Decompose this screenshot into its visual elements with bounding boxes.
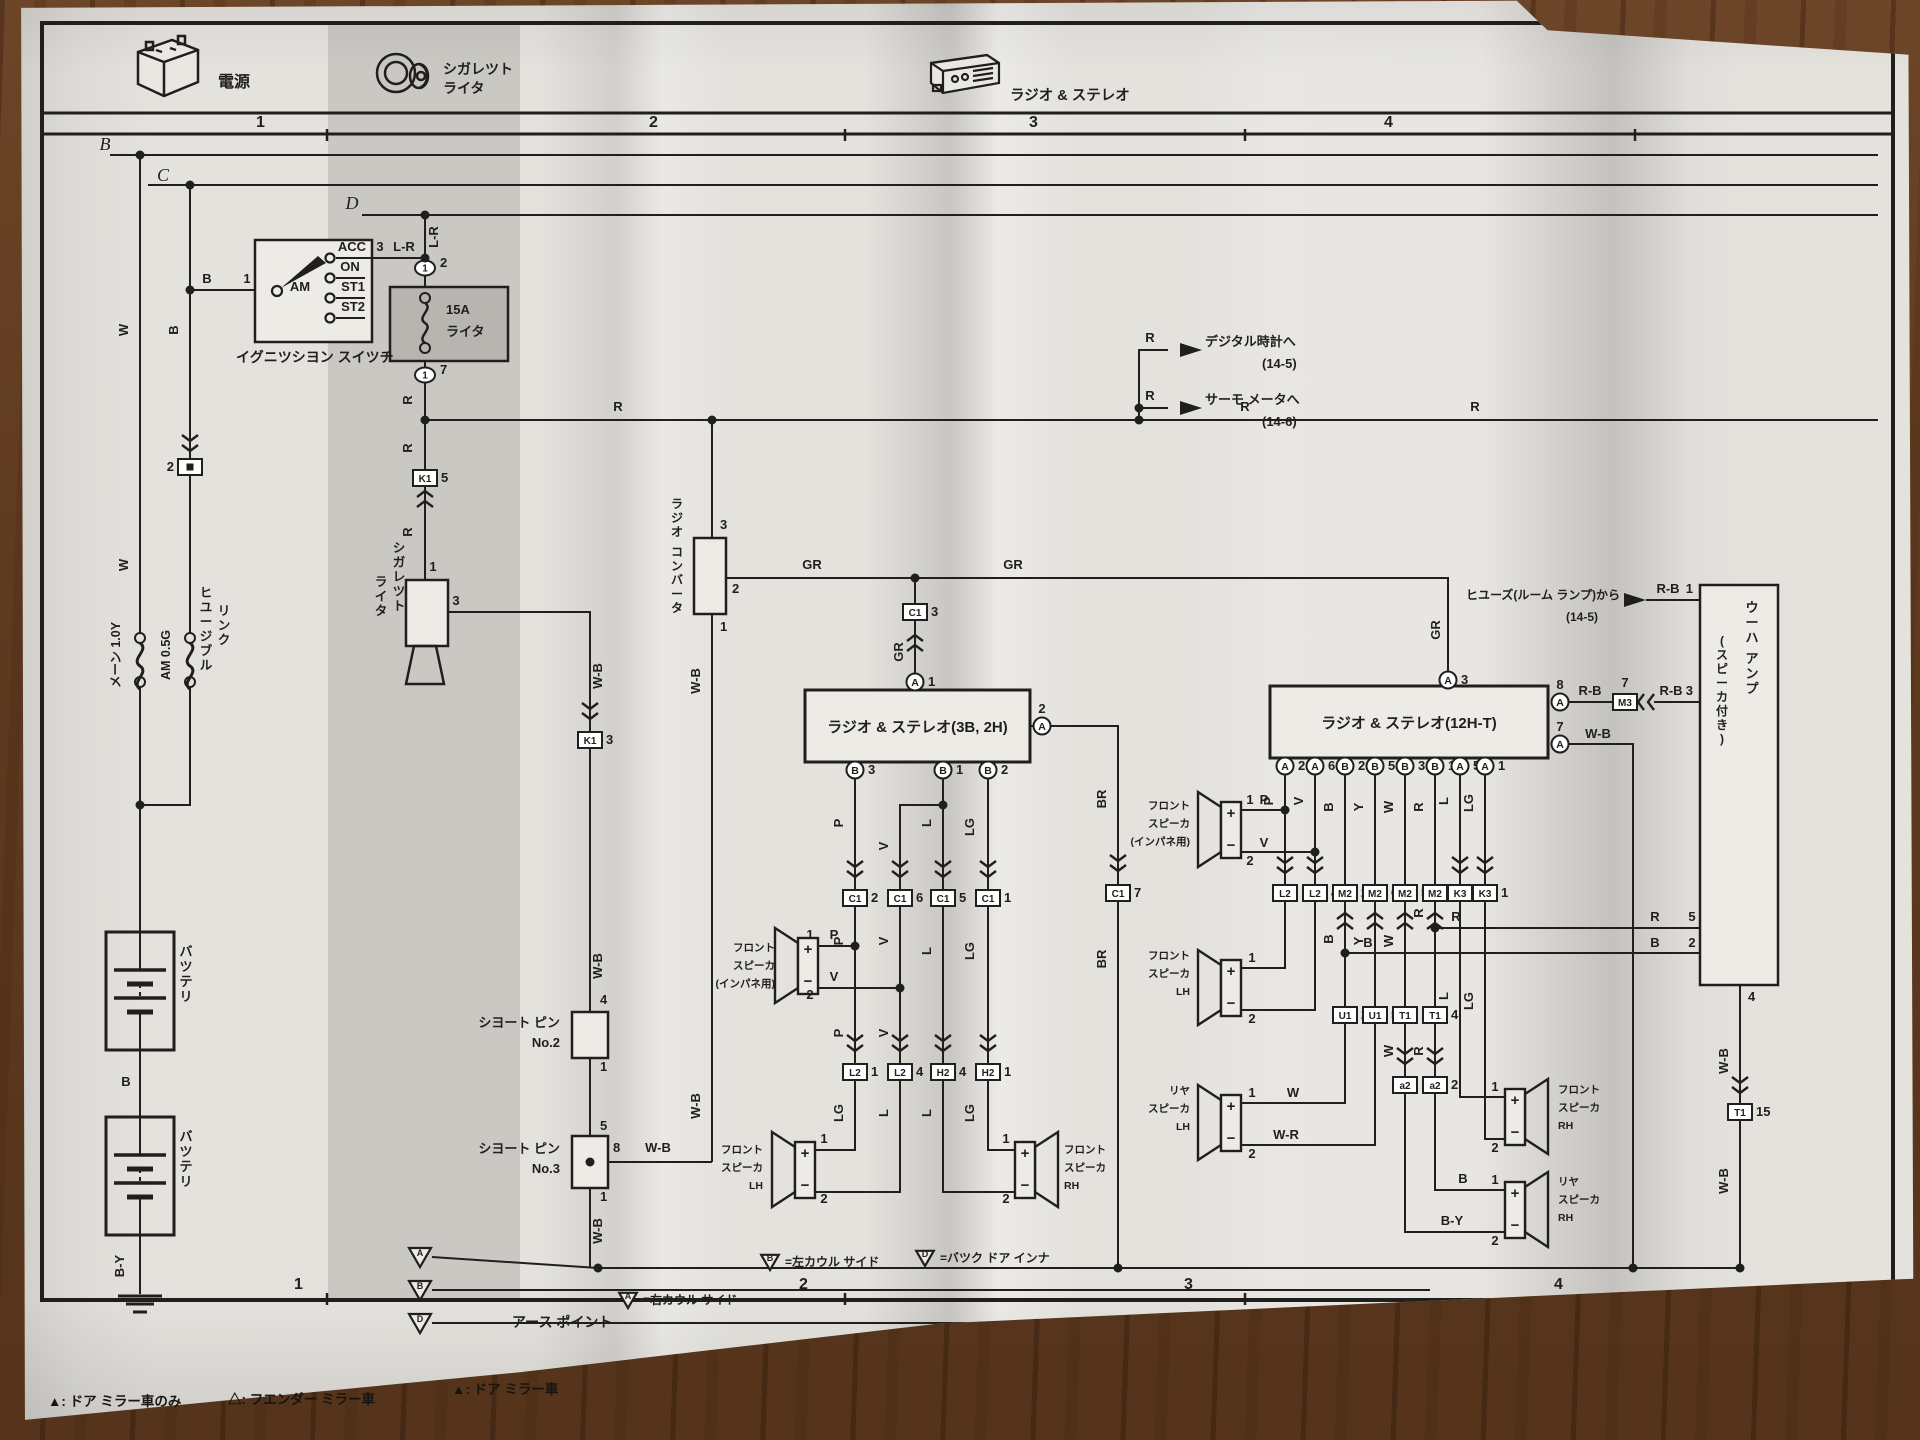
wire-label: 3 [1686, 683, 1693, 698]
connector-pin-number: 4 [959, 1064, 967, 1079]
ground-triangle-letter: D [417, 1314, 424, 1324]
connector-pin-number: 3 [606, 732, 613, 747]
wire-label: R [1411, 1046, 1426, 1056]
wire-label: =左カウル サイド [785, 1254, 879, 1269]
wire-label: 2 [1002, 1191, 1009, 1206]
junction-dot [1311, 848, 1320, 857]
vertical-label-char: テ [179, 974, 192, 989]
wire-label: イグニツシヨン スイツチ [236, 349, 394, 365]
wire-label: スピーカ [1558, 1194, 1600, 1206]
ground-triangle-letter: B [767, 1253, 774, 1263]
junction-dot [136, 801, 145, 810]
wire-label: (インパネ用) [1131, 836, 1191, 848]
column-number-bottom-1: 1 [294, 1276, 303, 1294]
wire-label: W [116, 558, 131, 571]
speaker-plus: + [801, 1145, 810, 1162]
ignition-contact [326, 294, 335, 303]
wire-label: LG [962, 942, 977, 960]
wire-label: B [1650, 935, 1659, 950]
wire-label: ST1 [341, 279, 365, 294]
speaker-minus: − [801, 1177, 810, 1194]
junction-dot [1135, 416, 1144, 425]
wire-label: W [1381, 934, 1396, 947]
speaker-plus: + [804, 941, 813, 958]
wire-label: LH [1176, 1121, 1190, 1133]
vertical-label-char: ジ [671, 511, 683, 525]
wire-label: B [1363, 935, 1372, 950]
vertical-label-char: タ [671, 601, 683, 615]
wire-label: GR [1003, 557, 1023, 572]
wire-label: RH [1064, 1180, 1079, 1192]
wire-label: フロント [1064, 1144, 1106, 1156]
vertical-label-char: ン [1745, 666, 1758, 681]
wire-label: L [919, 1109, 934, 1117]
wire-label: B [166, 325, 181, 334]
vertical-label-char: ツ [393, 585, 406, 599]
wire-label: スピーカ [733, 960, 775, 972]
wire-label: R [1451, 909, 1461, 924]
wire-label: アース ポイント [512, 1314, 612, 1330]
wire-label: 2 [1491, 1140, 1498, 1155]
header-label-radio: ラジオ & ステレオ [1010, 84, 1130, 105]
front-speaker-rh-12ht [1505, 1079, 1548, 1154]
junction-dot [586, 1158, 595, 1167]
connector-code: C1 [982, 894, 995, 905]
wire-label: 1 [1248, 950, 1255, 965]
connector-code: C1 [894, 894, 907, 905]
radio-3b2h-box-label: ラジオ & ステレオ(3B, 2H) [827, 719, 1008, 736]
wire-label: B [121, 1074, 130, 1089]
header-label-power: 電源 [218, 68, 250, 92]
pin-number: 1 [956, 762, 963, 777]
speaker-plus: + [1227, 805, 1236, 822]
vertical-label-char: リ [179, 1174, 192, 1189]
wire-label: V [876, 841, 891, 850]
vertical-label-char: テ [179, 1159, 192, 1174]
wire [1405, 1093, 1505, 1232]
wiring-diagram: ラジオ & ステレオ(3B, 2H)ラジオ & ステレオ(12H-T)+−+−+… [0, 0, 1920, 1440]
connector-pin-number: 6 [916, 890, 923, 905]
connector-code: M3 [1618, 698, 1632, 709]
wire-label: B [1458, 1171, 1467, 1186]
vertical-label-char: ツ [179, 959, 192, 974]
wire-label: R [613, 399, 623, 414]
vertical-label-char: ン [671, 559, 683, 573]
wire [1242, 1023, 1375, 1145]
wire-label: W-B [1716, 1048, 1731, 1074]
speaker-minus: − [1021, 1177, 1030, 1194]
speaker-minus: − [1511, 1217, 1520, 1234]
wire-label: L [919, 947, 934, 955]
pin-number: 2 [1038, 701, 1045, 716]
wire-label: LG [831, 1104, 846, 1122]
pin-circle-letter: A [1456, 761, 1464, 773]
vertical-label-char: ユ [200, 601, 213, 615]
wire-label: 3 [376, 239, 383, 254]
pin-number: 2 [1358, 758, 1365, 773]
pin-number: 2 [1001, 762, 1008, 777]
wire-label: LH [749, 1180, 763, 1192]
wire-label: 1 [1491, 1079, 1498, 1094]
pin-circle-letter: B [939, 765, 947, 777]
wire-label: P [830, 927, 839, 942]
wire-label: V [1260, 835, 1269, 850]
wire-label: (14-5) [1566, 610, 1598, 624]
wire [140, 687, 190, 805]
wire-label: GR [802, 557, 822, 572]
wire-label: スピーカ [1558, 1102, 1600, 1114]
wire-label: ON [340, 259, 360, 274]
vertical-label-char: カ [1716, 690, 1728, 704]
junction-dot [896, 984, 905, 993]
wire-label: R-B [1578, 683, 1601, 698]
wire-label: R [1650, 909, 1660, 924]
wire-label: スピーカ [721, 1162, 763, 1174]
wire-label: R [400, 395, 415, 405]
wire-label: R-B [1656, 581, 1679, 596]
vertical-label-char: ハ [1745, 630, 1758, 645]
wire-label: フロント [1148, 800, 1190, 812]
wire-label: L-R [426, 226, 441, 248]
wire-label: 8 [613, 1140, 620, 1155]
wire-label: AM [290, 279, 310, 294]
wire-label: L [876, 1109, 891, 1117]
wire-label: サーモ メータへ [1205, 392, 1300, 407]
ground-triangle-letter: B [417, 1281, 424, 1291]
vertical-label-char: ア [1745, 651, 1758, 666]
wire-label: No.3 [532, 1161, 560, 1176]
vertical-label-char: ピ [1716, 662, 1728, 676]
wire-label: No.2 [532, 1035, 560, 1050]
wire-label: R-B [1659, 683, 1682, 698]
wire-label: 5 [600, 1118, 607, 1133]
rear-speaker-rh [1505, 1172, 1548, 1247]
speaker-plus: + [1227, 1098, 1236, 1115]
wire-label: 2 [806, 987, 813, 1002]
speaker-minus: − [1227, 1130, 1236, 1147]
oval-connector-code: 1 [422, 371, 428, 382]
wire-label: 7 [440, 362, 447, 377]
wire-label: C [157, 165, 170, 185]
pin-number: 3 [1461, 672, 1468, 687]
wire-label: W-B [688, 668, 703, 694]
connector-pin-number: 1 [1501, 885, 1508, 900]
vertical-label-char: バ [179, 944, 192, 959]
wire-label: ヒユーズ(ルーム ランプ)から [1466, 587, 1620, 602]
wire-label: GR [891, 642, 906, 662]
wire-label: RH [1558, 1120, 1573, 1132]
pin-number: 3 [868, 762, 875, 777]
fusible-link-icon [187, 643, 193, 689]
wire-label: 1 [1491, 1172, 1498, 1187]
pin-circle-letter: A [1556, 739, 1564, 751]
wire-label: 8 [1556, 677, 1563, 692]
goes-to-arrow-icon [1180, 343, 1202, 357]
connector-code: K1 [584, 736, 597, 747]
junction-dot [1135, 404, 1144, 413]
wire [432, 1257, 1740, 1268]
pin-number: 2 [1298, 758, 1305, 773]
connector-pin-number: 2 [167, 459, 174, 474]
wire-label: 1 [820, 1131, 827, 1146]
vertical-label-char: バ [179, 1129, 192, 1144]
wire-label: 1 [429, 559, 436, 574]
wire-label: (インパネ用) [716, 978, 776, 990]
wire-label: AM 0.5G [159, 630, 173, 680]
wire-label: L-R [393, 239, 415, 254]
pin-number: 1 [928, 674, 935, 689]
wire-label: 2 [732, 581, 739, 596]
ignition-contact [326, 274, 335, 283]
wire-label: ST2 [341, 299, 365, 314]
wire-label: 1 [243, 271, 250, 286]
pin-circle-letter: A [1311, 761, 1319, 773]
wire-label: (14-5) [1262, 356, 1297, 371]
wire-label: P [1260, 792, 1269, 807]
ignition-am-contact [272, 286, 282, 296]
vertical-label-char: ジ [200, 630, 213, 644]
column-number-bottom-4: 4 [1554, 1276, 1563, 1294]
connector-code: C1 [937, 894, 950, 905]
vertical-label-char: シ [393, 541, 406, 555]
wire-label: V [1291, 796, 1306, 805]
wire-label: リヤ [1558, 1176, 1579, 1188]
vertical-label-char: ブ [200, 643, 213, 658]
speaker-minus: − [1227, 837, 1236, 854]
fusible-link-icon [185, 633, 195, 643]
pin-circle-letter: A [1038, 721, 1046, 733]
wire-label: B [1321, 934, 1336, 943]
vertical-label-char: ク [218, 633, 231, 647]
wire-label: BR [1094, 949, 1109, 968]
wire-label: 2 [1491, 1233, 1498, 1248]
vertical-label-char: ヒ [200, 586, 213, 600]
connector-pin-number: 1 [871, 1064, 878, 1079]
wire-label: ACC [338, 239, 367, 254]
wire-label: (14-6) [1262, 414, 1297, 429]
pin-number: 1 [1498, 758, 1505, 773]
connector-pin-number: 4 [1451, 1007, 1459, 1022]
photo-of-wiring-diagram: { "title": "電源 / シガレツト ライタ / ラジオ & ステレオ … [0, 0, 1920, 1440]
wire-label: スピーカ [1148, 968, 1190, 980]
wire-label: 1 [720, 619, 727, 634]
wire-label: B [202, 271, 211, 286]
junction-dot [186, 181, 195, 190]
wire-label: W-B [590, 663, 605, 689]
junction-dot [1281, 806, 1290, 815]
ground-triangle-letter: A [625, 1291, 632, 1301]
connector-code: U1 [1339, 1011, 1352, 1022]
wire-label: 1 [1248, 1085, 1255, 1100]
connector-pin-number: 2 [871, 890, 878, 905]
column-number-top-4: 4 [1384, 114, 1393, 132]
wire-label: 3 [720, 517, 727, 532]
header-label-lighter: シガレツト ライタ [443, 60, 513, 98]
vertical-label-char: ツ [179, 1144, 192, 1159]
connector-code: a2 [1399, 1081, 1411, 1092]
goes-to-arrow-icon [1180, 401, 1202, 415]
vertical-label-char: タ [375, 603, 388, 618]
wire-label: 4 [600, 992, 608, 1007]
wire-label: 7 [1556, 719, 1563, 734]
wire-label: =バツク ドア インナ [940, 1251, 1050, 1265]
wire [815, 1080, 900, 1192]
wire-label: W-B [645, 1140, 671, 1155]
junction-dot [851, 942, 860, 951]
connector-pin-number: 2 [1451, 1077, 1458, 1092]
vertical-label-char: ー [1745, 615, 1758, 630]
pin-number: 6 [1328, 758, 1335, 773]
connector-code: M2 [1398, 889, 1412, 900]
front-speaker-lh-3b2h [772, 1132, 815, 1207]
junction-dot [186, 286, 195, 295]
wire-label: スピーカ [1148, 1103, 1190, 1115]
connector-code: a2 [1429, 1081, 1441, 1092]
wire-label: W-B [688, 1093, 703, 1119]
junction-dot [421, 254, 430, 263]
wire-label: リヤ [1169, 1085, 1190, 1097]
wire-label: W [116, 323, 131, 336]
junction-dot [939, 801, 948, 810]
connector-pin-number: 5 [959, 890, 966, 905]
vertical-label-char: レ [393, 570, 406, 584]
front-speaker-instrument-panel-12ht [1198, 792, 1241, 867]
vertical-label-char: プ [1745, 681, 1759, 696]
wire-label: RH [1558, 1212, 1573, 1224]
pin-circle-letter: A [1481, 761, 1489, 773]
wire-label: P [831, 1028, 846, 1037]
wire-label: 3 [452, 593, 459, 608]
ignition-contact [326, 254, 335, 263]
pin-circle-letter: B [1341, 761, 1349, 773]
wire-label: 1 [806, 927, 813, 942]
wire-label: LG [962, 1104, 977, 1122]
radio-12ht-box-label: ラジオ & ステレオ(12H-T) [1321, 715, 1497, 732]
wire-label: 7 [1621, 675, 1628, 690]
wire-label: LG [1461, 992, 1476, 1010]
harness-arrow-icon [1638, 694, 1654, 710]
pin-circle-letter: B [851, 765, 859, 777]
wire-label: W-B [1716, 1168, 1731, 1194]
wire-label: 2 [1688, 935, 1695, 950]
junction-dot [1736, 1264, 1745, 1273]
pin-circle-letter: A [1556, 697, 1564, 709]
wire-label: デジタル時計へ [1205, 334, 1296, 349]
wire-label: 2 [1246, 853, 1253, 868]
pin-circle-letter: B [1431, 761, 1439, 773]
connector-pin-number: 7 [1134, 885, 1141, 900]
pin-circle-letter: A [1444, 675, 1452, 687]
vertical-label-char: イ [375, 590, 388, 604]
wire-label: L [919, 819, 934, 827]
wire [1485, 901, 1505, 1139]
wire-label: R [1411, 908, 1426, 918]
vertical-label-char: ( [1720, 634, 1724, 648]
wire-label: 1 [1686, 581, 1693, 596]
wire-label: R [400, 527, 415, 537]
wire-label: シヨート ピン [478, 1141, 560, 1156]
connector-code: M2 [1368, 889, 1382, 900]
wire-label: メーン 1.0Y [109, 621, 123, 688]
junction-dot [708, 416, 717, 425]
wire-label: 1 [600, 1059, 607, 1074]
ignition-contact [326, 314, 335, 323]
wire-label: R [1145, 330, 1155, 345]
wire-label: スピーカ [1148, 818, 1190, 830]
connector-code: H2 [937, 1068, 950, 1079]
wire-label: 2 [1248, 1011, 1255, 1026]
fusible-link-icon [135, 633, 145, 643]
connector-pin-number: 1 [1004, 890, 1011, 905]
wire-label: 2 [1248, 1146, 1255, 1161]
wire [1564, 744, 1633, 1268]
wire-label: ライタ [446, 324, 484, 339]
woofer-amp-box [1700, 585, 1778, 985]
wire-label: W [1381, 1044, 1396, 1057]
vertical-label-char: ト [393, 599, 406, 613]
wire-label: W-B [1585, 726, 1611, 741]
vertical-label-char: 付 [1716, 703, 1728, 718]
pin-circle-letter: A [911, 677, 919, 689]
junction-dot [136, 151, 145, 160]
wire-label: L [1436, 797, 1451, 805]
vertical-label-char: き [1716, 718, 1728, 732]
vertical-label-char: バ [671, 573, 683, 587]
ground-triangle-letter: D [922, 1249, 929, 1259]
connector-code: K3 [1479, 889, 1492, 900]
wire-label: P [831, 818, 846, 827]
wire-label: L [1436, 992, 1451, 1000]
legend-item-door-mirror: ▲: ドア ミラー車 [452, 1378, 558, 1398]
cigarette-lighter-body [406, 580, 448, 646]
wire-label: 5 [1688, 909, 1695, 924]
connector-code: C1 [909, 608, 922, 619]
connector-code: L2 [849, 1068, 861, 1079]
pin-number: 3 [1418, 758, 1425, 773]
filled-triangle-icon: ▲ [452, 1382, 465, 1397]
short-pin-no2-box [572, 1012, 608, 1058]
junction-dot [1114, 1264, 1123, 1273]
wire-label: W-B [590, 953, 605, 979]
wire-label: フロント [1558, 1084, 1600, 1096]
wire-label: V [830, 969, 839, 984]
wire-label: BR [1094, 789, 1109, 808]
connector-code: C1 [1112, 889, 1125, 900]
wire-label: B [100, 134, 111, 154]
wire-label: W [1381, 800, 1396, 813]
connector-code: K1 [419, 474, 432, 485]
wire-label: 1 [1246, 792, 1253, 807]
wire-label: W-R [1273, 1127, 1299, 1142]
vertical-label-char: ル [200, 659, 213, 673]
connector-pin-number: 4 [916, 1064, 924, 1079]
vertical-label-char: ー [1716, 676, 1728, 690]
connector-code: L2 [1309, 889, 1321, 900]
wire-label: R [1470, 399, 1480, 414]
speaker-plus: + [1227, 963, 1236, 980]
column-number-top-3: 3 [1029, 114, 1038, 132]
connector-code: M2 [1428, 889, 1442, 900]
wire-label: B-Y [1441, 1213, 1464, 1228]
wire-label: V [876, 936, 891, 945]
speaker-minus: − [1227, 995, 1236, 1012]
connector-code: L2 [1279, 889, 1291, 900]
vertical-label-char: ー [200, 615, 213, 629]
wire-label: 4 [1748, 989, 1756, 1004]
wire-label: W [1287, 1085, 1300, 1100]
vertical-label-char: リ [179, 989, 192, 1004]
vertical-label-char: ン [218, 619, 231, 633]
